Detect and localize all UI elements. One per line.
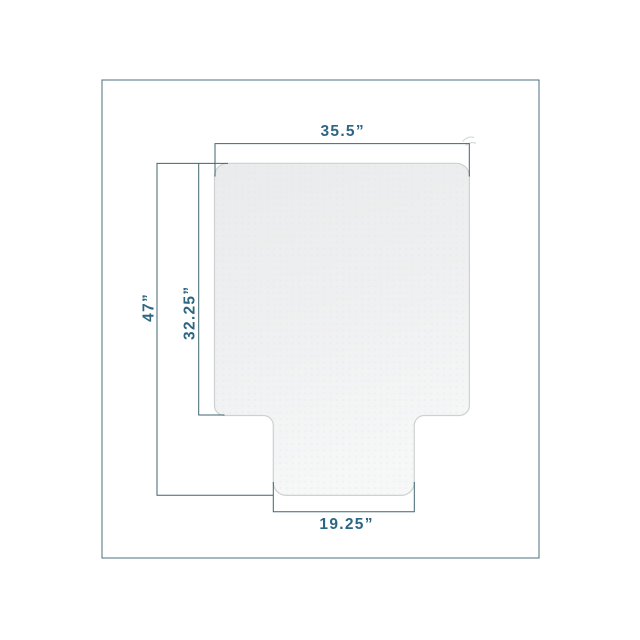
svg-text:35.5”: 35.5” (320, 123, 364, 140)
svg-text:32.25”: 32.25” (182, 286, 199, 340)
svg-text:47”: 47” (140, 293, 157, 322)
svg-text:19.25”: 19.25” (319, 516, 373, 533)
